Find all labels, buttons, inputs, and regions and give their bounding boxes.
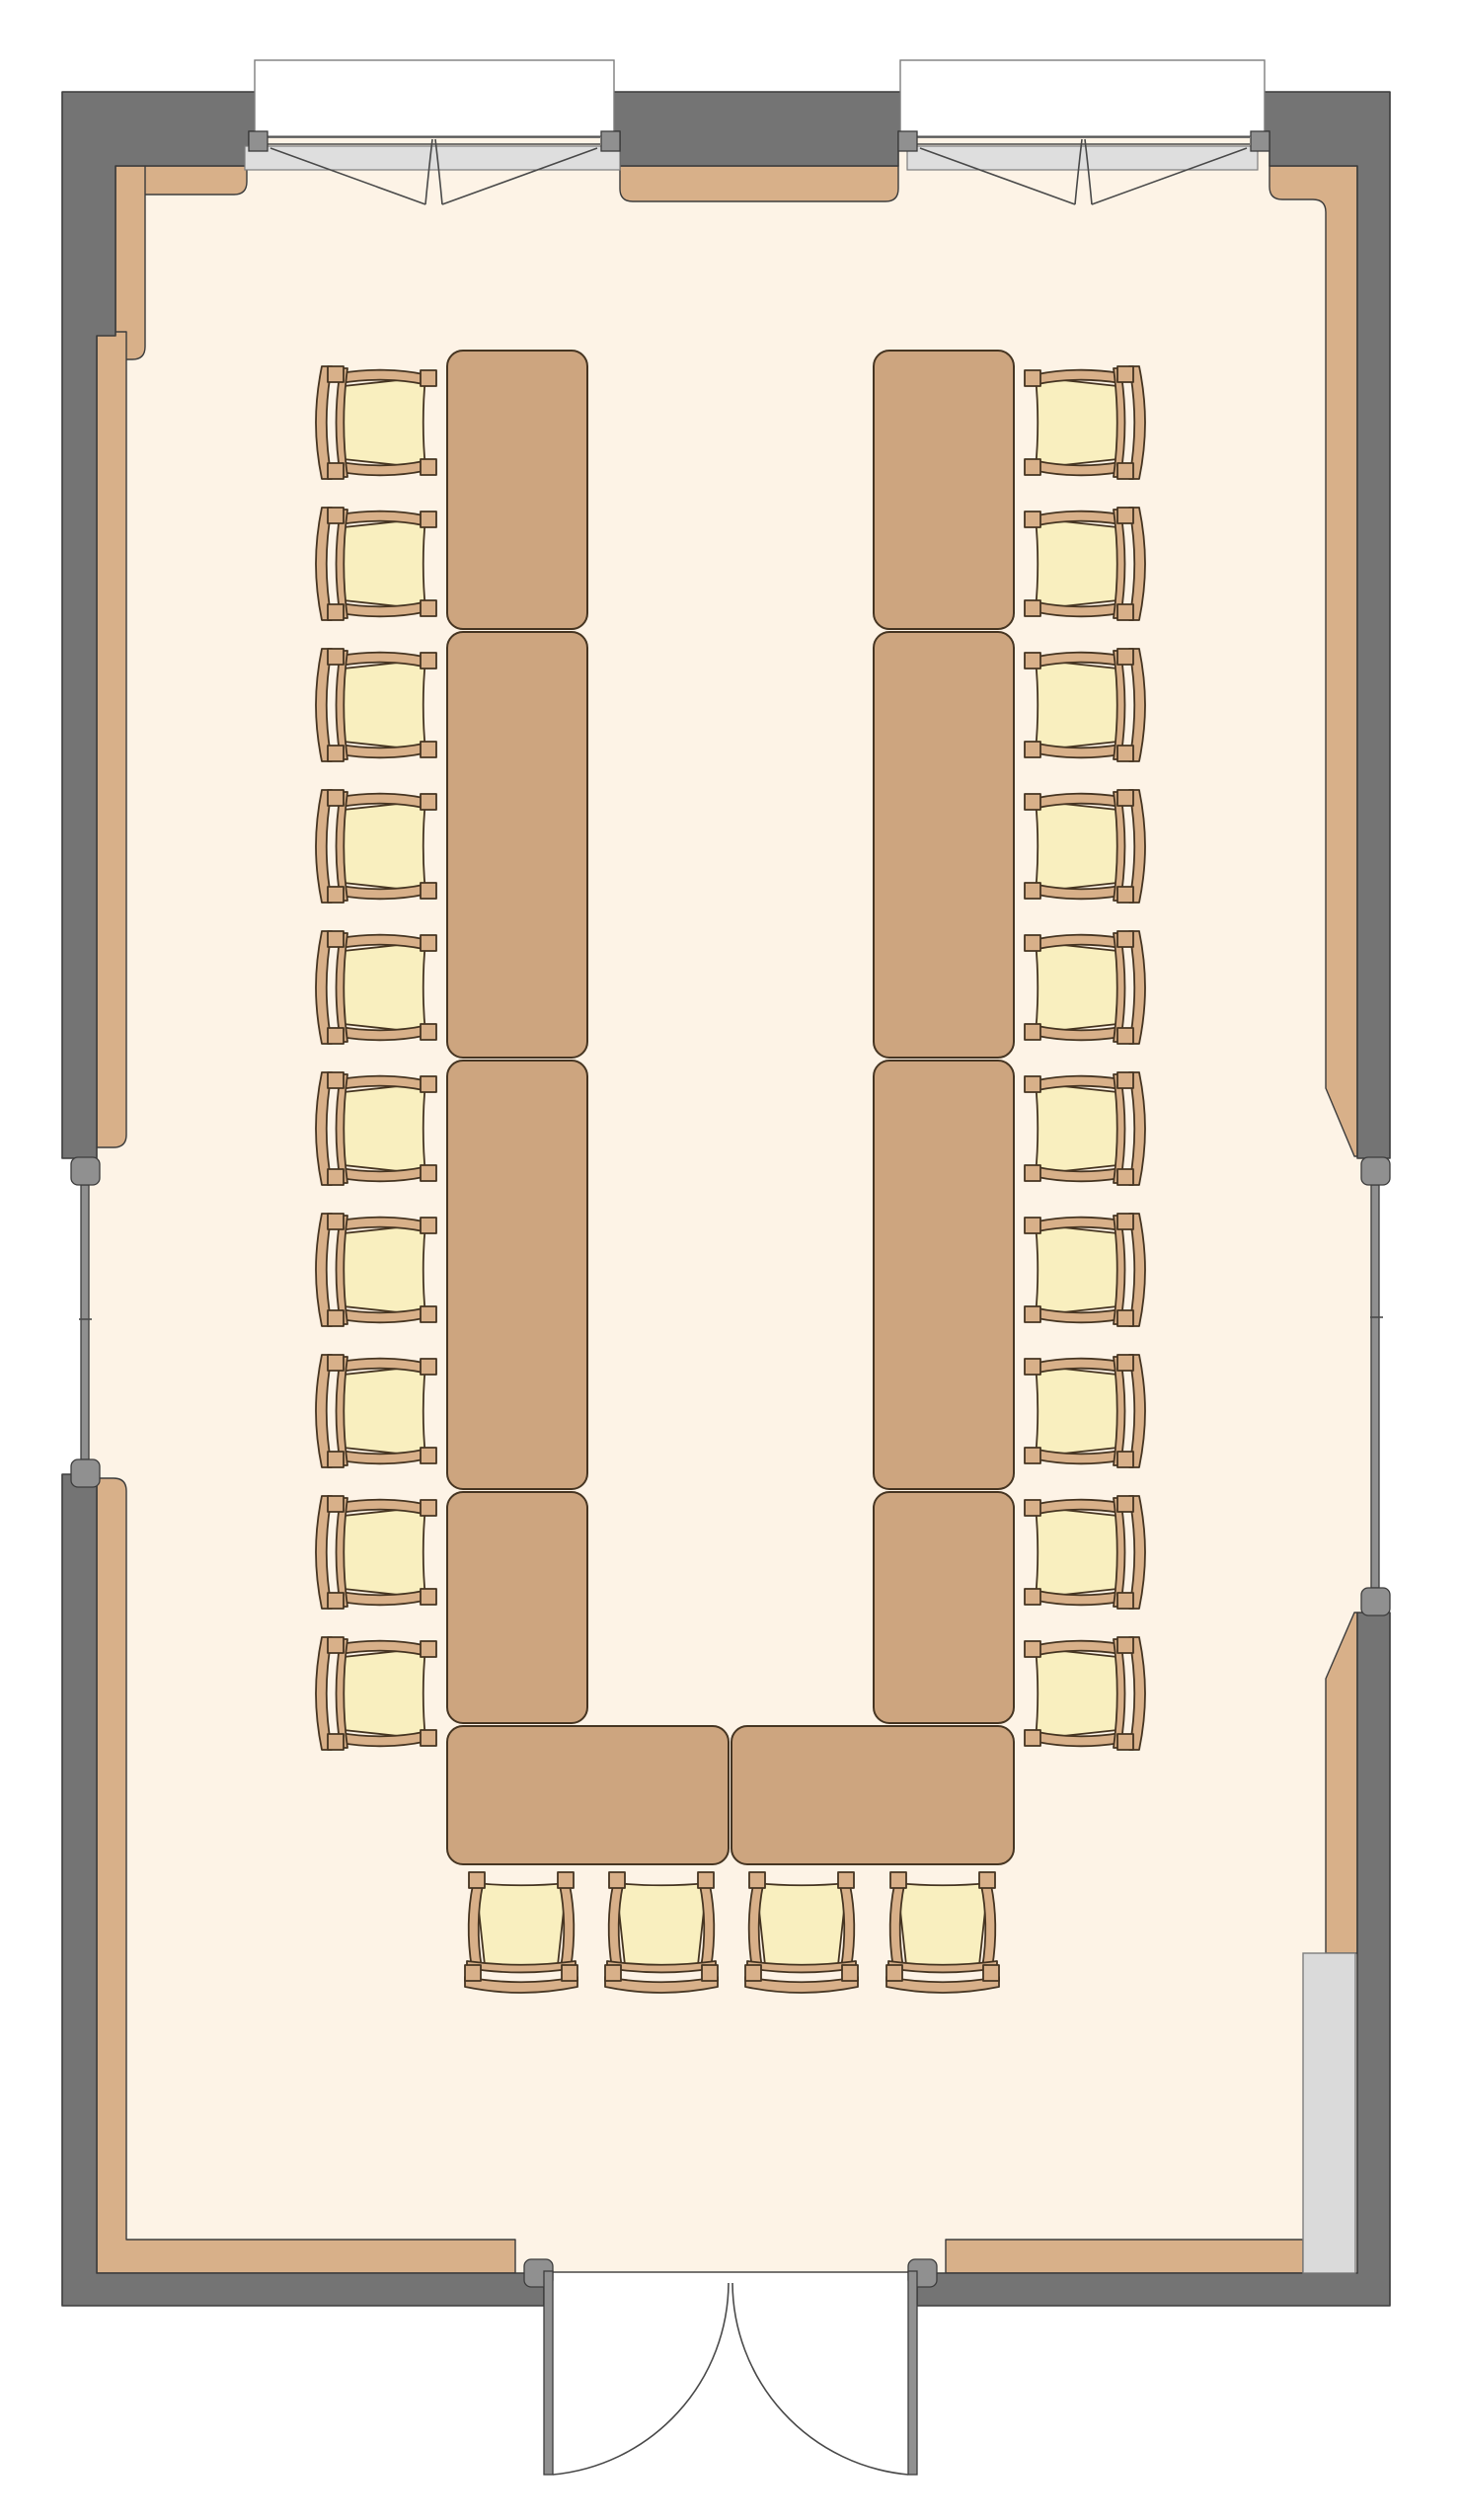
strip-window-left-cap-bottom [71,1459,100,1487]
door-leaf-right [908,2271,917,2475]
strip-window-left-glazing [81,1185,89,1459]
door-swing-right [732,2283,908,2475]
table-segment-right-3 [874,1061,1014,1489]
wall-trim-top-mid-pier [620,166,898,201]
window-sill-left [245,146,620,170]
table-segment-right-4 [874,1492,1014,1723]
table-segment-right-1 [874,351,1014,629]
casement-window-right [900,60,1265,136]
strip-window-right-glazing [1371,1185,1379,1588]
window-jamb [601,131,620,151]
floor-plan-canvas [0,0,1461,2520]
wall-trim-bottom-right [946,2240,1303,2273]
door-swing-left [553,2283,729,2475]
table-segment-left-2 [447,632,587,1058]
casement-window-left [255,60,614,136]
table-segment-left-3 [447,1061,587,1489]
room-floor [89,138,1372,2273]
radiator-panel [1303,1953,1355,2273]
wall-trim-left-upper [97,332,126,1147]
wall-trim-top-left-v [115,166,145,359]
window-jamb [249,131,268,151]
window-sill-right [907,146,1258,170]
table-segment-right-2 [874,632,1014,1058]
wall-top-middle-pier [601,92,917,166]
table-segment-left-4 [447,1492,587,1723]
table-segment-bottom-2 [731,1726,1014,1864]
table-segment-left-1 [447,351,587,629]
door-leaf-left [544,2271,553,2475]
window-jamb [898,131,917,151]
strip-window-right-cap-bottom [1361,1588,1390,1615]
window-jamb [1251,131,1269,151]
strip-window-left-cap-top [71,1157,100,1185]
table-segment-bottom-1 [447,1726,729,1864]
door-layer [524,2259,937,2475]
floor-plan-drawing [0,0,1461,2520]
strip-window-right-cap-top [1361,1157,1390,1185]
